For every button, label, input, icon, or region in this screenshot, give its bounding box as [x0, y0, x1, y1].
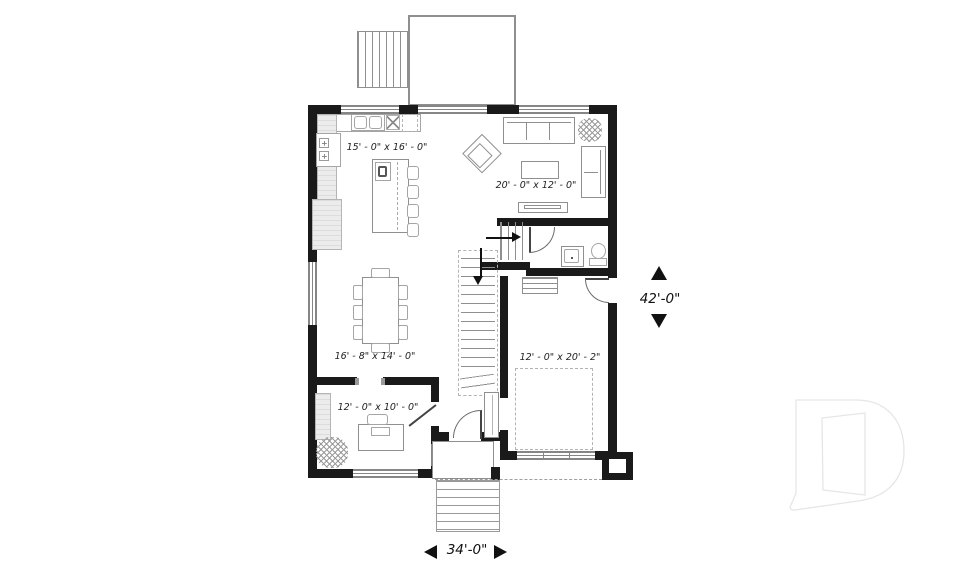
sofa: [503, 117, 575, 144]
coffee-table: [521, 161, 559, 179]
lounge-chair: [581, 146, 606, 198]
room-label-living: 20' - 0" x 12' - 0": [496, 180, 577, 191]
plant-icon: [578, 118, 602, 142]
stair-arrow-right: [486, 237, 513, 239]
toilet: [591, 243, 606, 259]
sink-basin: [354, 116, 367, 129]
island-counter-line: [397, 162, 398, 230]
wall-segment: [500, 276, 508, 398]
bar-stool: [407, 223, 419, 237]
garage-steps: [522, 277, 558, 294]
parking-space: [515, 368, 593, 450]
pantry-cabinet: [312, 199, 342, 250]
garage-door: [517, 451, 595, 460]
arrow-right-icon: [494, 545, 507, 559]
doorway-jamb: [381, 378, 385, 385]
dining-chair: [398, 285, 408, 300]
toilet-tank: [589, 258, 607, 266]
wall-segment: [399, 105, 418, 114]
deck: [408, 15, 516, 106]
wall-segment: [608, 303, 617, 460]
wall-segment: [383, 377, 439, 385]
dining-chair: [353, 305, 363, 320]
dining-table: [362, 277, 399, 344]
brand-watermark-d-logo: [780, 388, 915, 518]
vanity-sink: [564, 249, 579, 263]
stair-arrow-down: [480, 248, 482, 276]
dining-chair: [398, 325, 408, 340]
porch-steps: [436, 480, 500, 532]
patio-door: [418, 105, 487, 114]
wall-segment: [487, 105, 519, 114]
floor-plan: 15' - 0" x 16' - 0" 20' - 0" x 12' - 0" …: [0, 0, 960, 569]
arrow-left-icon: [424, 545, 437, 559]
arrow-down-icon: [651, 314, 667, 328]
window: [308, 262, 317, 325]
arrow-right-icon: [512, 232, 521, 242]
bar-stool: [407, 166, 419, 180]
room-label-kitchen: 15' - 0" x 16' - 0": [347, 142, 428, 153]
bar-stool: [407, 204, 419, 218]
room-label-office: 12' - 0" x 10' - 0": [338, 402, 419, 413]
wall-segment: [608, 105, 617, 278]
wall-segment: [526, 268, 617, 276]
dining-chair: [398, 305, 408, 320]
wall-segment: [308, 377, 357, 385]
office-shelf: [315, 393, 331, 440]
fridge-icon: [319, 151, 329, 161]
sink-basin: [369, 116, 382, 129]
bar-stool: [407, 185, 419, 199]
dining-chair: [353, 285, 363, 300]
wall-segment: [500, 430, 508, 460]
prep-sink-basin: [378, 166, 387, 177]
window: [519, 105, 589, 114]
window: [341, 105, 399, 114]
deck-stairs: [357, 31, 408, 88]
door-swing-arc: [453, 410, 481, 438]
dining-chair: [353, 325, 363, 340]
wall-segment: [431, 385, 439, 402]
overall-depth-label: 42'-0": [640, 291, 681, 307]
room-label-dining: 16' - 8" x 14' - 0": [335, 351, 416, 362]
desk-chair: [367, 414, 388, 425]
monitor: [371, 427, 390, 436]
arrow-down-icon: [473, 276, 483, 285]
armchair: [461, 134, 503, 176]
front-porch: [432, 441, 494, 479]
arrow-up-icon: [651, 266, 667, 280]
wall-segment: [308, 469, 353, 478]
fridge-icon: [319, 138, 329, 148]
room-label-garage: 12' - 0" x 20' - 2": [520, 352, 601, 363]
doorway-jamb: [355, 378, 359, 385]
plant-icon: [316, 437, 348, 468]
porch-pillar: [602, 452, 633, 480]
sink-drain: [571, 257, 573, 259]
overall-width-label: 34'-0": [447, 542, 488, 558]
door-swing-arc: [529, 227, 555, 253]
window: [353, 469, 418, 478]
cooktop-icon: [386, 115, 400, 130]
tv-console: [518, 202, 568, 213]
entry-closet: [484, 392, 499, 438]
dining-chair: [371, 268, 390, 278]
door-swing-arc: [585, 279, 609, 303]
dishwasher: [402, 114, 418, 132]
